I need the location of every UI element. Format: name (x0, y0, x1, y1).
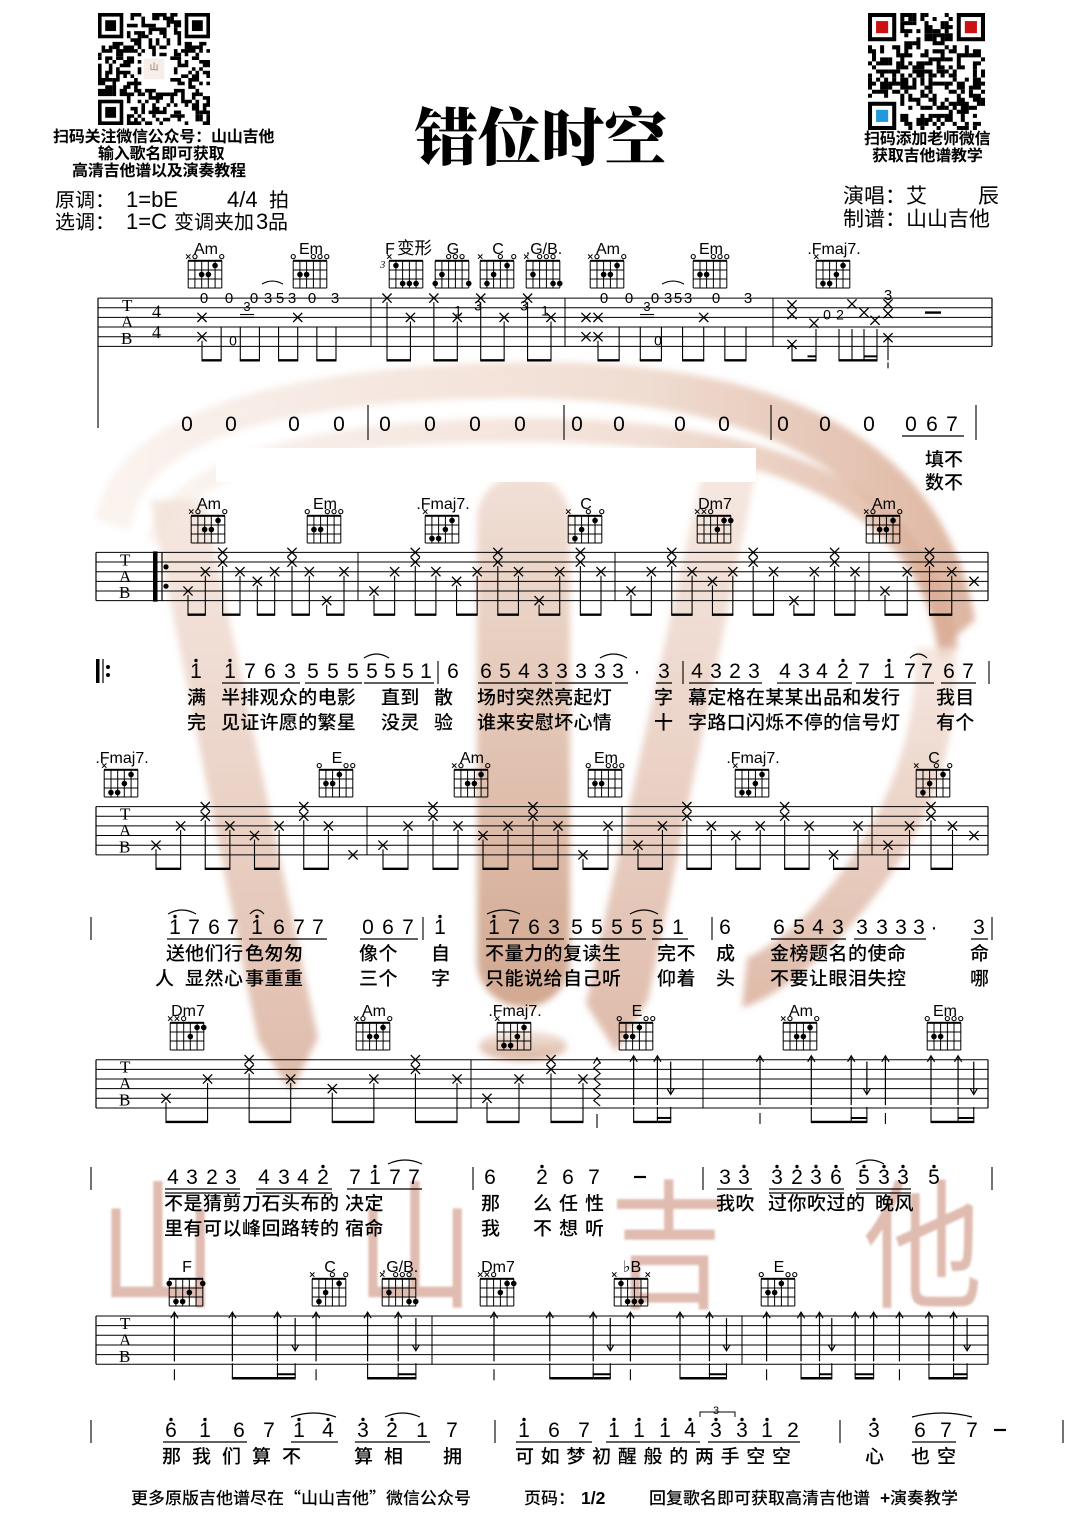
svg-text:6: 6 (719, 916, 731, 939)
svg-text:3: 3 (556, 660, 568, 683)
svg-text:6: 6 (264, 660, 276, 683)
svg-text:0: 0 (469, 413, 481, 436)
svg-text:2: 2 (536, 1166, 548, 1189)
svg-text:6: 6 (914, 1419, 926, 1442)
svg-text:0: 0 (712, 290, 720, 307)
svg-text:6: 6 (484, 1166, 496, 1189)
svg-text:3: 3 (612, 660, 624, 683)
svg-text:B: B (119, 1347, 130, 1366)
svg-text:3: 3 (474, 298, 482, 314)
svg-text:0: 0 (225, 413, 237, 436)
svg-text:Am: Am (872, 496, 896, 513)
svg-text:3: 3 (658, 660, 670, 683)
svg-text:0: 0 (863, 413, 875, 436)
svg-text:1/2: 1/2 (581, 1488, 606, 1508)
svg-text:6: 6 (480, 660, 492, 683)
svg-text:5: 5 (276, 290, 284, 307)
svg-text:2: 2 (791, 1166, 803, 1189)
svg-text:7: 7 (227, 916, 239, 939)
svg-text:0: 0 (651, 290, 659, 307)
svg-text:6: 6 (382, 916, 394, 939)
svg-text:1: 1 (454, 302, 462, 318)
svg-text:3: 3 (243, 299, 250, 314)
svg-text:B: B (121, 329, 132, 348)
svg-text:3: 3 (798, 660, 810, 683)
svg-text:7: 7 (578, 1419, 590, 1442)
svg-text:4: 4 (779, 660, 791, 683)
svg-text:6: 6 (208, 916, 220, 939)
svg-text:6: 6 (943, 660, 955, 683)
svg-text:0: 0 (308, 290, 316, 307)
svg-text:3: 3 (710, 660, 722, 683)
svg-text:4: 4 (167, 1166, 179, 1189)
svg-text:1: 1 (518, 1419, 530, 1442)
svg-text:1: 1 (420, 660, 432, 683)
svg-text:3: 3 (288, 290, 296, 307)
svg-text:0: 0 (600, 290, 608, 307)
svg-text:4: 4 (518, 660, 530, 683)
svg-text:7: 7 (904, 660, 916, 683)
svg-text:3: 3 (913, 916, 925, 939)
svg-text:·: · (634, 660, 641, 683)
svg-text:7: 7 (966, 1419, 978, 1442)
svg-text:Am: Am (194, 241, 218, 258)
svg-text:7: 7 (244, 660, 256, 683)
svg-text:5: 5 (652, 916, 664, 939)
svg-text:B: B (119, 1091, 130, 1110)
svg-text:7: 7 (312, 916, 324, 939)
svg-text:5: 5 (928, 1166, 940, 1189)
svg-text:3: 3 (748, 660, 760, 683)
svg-text:3: 3 (810, 1166, 822, 1189)
svg-text:♭B: ♭B (623, 1259, 641, 1276)
svg-text:3: 3 (575, 660, 587, 683)
svg-text:1: 1 (541, 302, 549, 318)
svg-text:6: 6 (528, 916, 540, 939)
svg-text:7: 7 (946, 413, 958, 436)
svg-text:5: 5 (631, 916, 643, 939)
svg-text:5: 5 (366, 660, 378, 683)
svg-text:·: · (931, 916, 938, 939)
svg-text:3: 3 (856, 916, 868, 939)
svg-text:3: 3 (643, 299, 650, 314)
svg-text:1: 1 (883, 660, 895, 683)
svg-text:2: 2 (787, 1419, 799, 1442)
svg-text:6: 6 (773, 916, 785, 939)
svg-text:4: 4 (152, 301, 161, 321)
svg-text:0: 0 (823, 306, 831, 322)
svg-text:5: 5 (402, 660, 414, 683)
svg-text:0: 0 (625, 290, 633, 307)
svg-text:Am: Am (197, 496, 221, 513)
svg-text:4: 4 (258, 1166, 270, 1189)
svg-text:3: 3 (736, 1419, 748, 1442)
svg-text:E: E (332, 750, 343, 767)
svg-text:0: 0 (229, 332, 237, 348)
svg-text:2: 2 (206, 1166, 218, 1189)
svg-text:7: 7 (940, 1419, 952, 1442)
svg-text:7: 7 (188, 916, 200, 939)
svg-text:3: 3 (278, 1166, 290, 1189)
svg-text:4: 4 (297, 1166, 309, 1189)
svg-text:3: 3 (594, 660, 606, 683)
svg-text:1: 1 (434, 916, 446, 939)
svg-text:+: + (880, 1488, 890, 1508)
svg-text:5: 5 (347, 660, 359, 683)
svg-text:4: 4 (684, 1419, 696, 1442)
svg-text:3: 3 (744, 290, 752, 307)
svg-text:3: 3 (225, 1166, 237, 1189)
svg-text:4: 4 (322, 1419, 334, 1442)
svg-text:Am: Am (460, 750, 484, 767)
svg-text:7: 7 (446, 1419, 458, 1442)
svg-text:3: 3 (357, 1419, 369, 1442)
svg-text:5: 5 (858, 1166, 870, 1189)
svg-text:3: 3 (264, 290, 272, 307)
svg-text:7: 7 (408, 1166, 420, 1189)
svg-text:0: 0 (225, 290, 233, 307)
svg-text:7: 7 (263, 1419, 275, 1442)
svg-text:7: 7 (402, 916, 414, 939)
svg-text:0: 0 (777, 413, 789, 436)
svg-text:3: 3 (186, 1166, 198, 1189)
svg-text:0: 0 (333, 413, 345, 436)
svg-text:1=C: 1=C (126, 209, 167, 234)
svg-text:3: 3 (520, 298, 528, 314)
svg-text:5: 5 (499, 660, 511, 683)
svg-text:0: 0 (674, 413, 686, 436)
svg-text:1: 1 (761, 1419, 773, 1442)
svg-text:1: 1 (293, 1419, 305, 1442)
svg-text:2: 2 (729, 660, 741, 683)
svg-text:1: 1 (608, 1419, 620, 1442)
svg-text:4: 4 (152, 322, 161, 342)
svg-text:7: 7 (858, 660, 870, 683)
svg-text:6: 6 (926, 413, 938, 436)
svg-text:B: B (119, 837, 130, 856)
svg-text:0: 0 (362, 916, 374, 939)
svg-text:1: 1 (169, 916, 181, 939)
svg-text:3: 3 (284, 660, 296, 683)
svg-text:0: 0 (654, 332, 662, 348)
svg-text:3: 3 (719, 1166, 731, 1189)
svg-text:7: 7 (921, 660, 933, 683)
svg-text:5: 5 (793, 916, 805, 939)
svg-text:0: 0 (571, 413, 583, 436)
svg-text:0: 0 (718, 413, 730, 436)
svg-text:1: 1 (190, 660, 202, 683)
svg-text:3: 3 (379, 260, 385, 271)
svg-text:0: 0 (200, 290, 208, 307)
svg-text:Am: Am (596, 241, 620, 258)
svg-text:5: 5 (611, 916, 623, 939)
svg-text:3: 3 (738, 1166, 750, 1189)
svg-text:E: E (632, 1003, 643, 1020)
svg-text:4: 4 (816, 660, 828, 683)
svg-text:1: 1 (488, 916, 500, 939)
svg-text:3: 3 (710, 1419, 722, 1442)
svg-text:6: 6 (447, 660, 459, 683)
svg-text:3: 3 (713, 1405, 719, 1417)
svg-text:7: 7 (389, 1166, 401, 1189)
svg-text:1: 1 (633, 1419, 645, 1442)
svg-text:4: 4 (691, 660, 703, 683)
svg-text:B: B (119, 583, 130, 602)
svg-text:F: F (182, 1259, 192, 1276)
svg-text:3: 3 (771, 1166, 783, 1189)
svg-text:3: 3 (973, 916, 985, 939)
svg-text:3: 3 (548, 916, 560, 939)
svg-text:1: 1 (659, 1419, 671, 1442)
svg-text:0: 0 (424, 413, 436, 436)
svg-text:6: 6 (830, 1166, 842, 1189)
svg-text:0: 0 (905, 413, 917, 436)
svg-text:3: 3 (876, 916, 888, 939)
svg-text:7: 7 (293, 916, 305, 939)
svg-text:3: 3 (537, 660, 549, 683)
svg-text:3: 3 (684, 290, 692, 307)
svg-text:1: 1 (416, 1419, 428, 1442)
svg-text:0: 0 (613, 413, 625, 436)
svg-text:Am: Am (789, 1003, 813, 1020)
svg-text:3: 3 (832, 916, 844, 939)
svg-text:5: 5 (591, 916, 603, 939)
svg-text:0: 0 (514, 413, 526, 436)
svg-text:0: 0 (819, 413, 831, 436)
svg-text:2: 2 (386, 1419, 398, 1442)
svg-text:5: 5 (571, 916, 583, 939)
svg-text:5: 5 (307, 660, 319, 683)
svg-text:4/4: 4/4 (227, 187, 258, 212)
svg-text:1: 1 (224, 660, 236, 683)
svg-text:7: 7 (349, 1166, 361, 1189)
svg-text:3: 3 (256, 209, 268, 234)
svg-text:2: 2 (837, 660, 849, 683)
svg-text:5: 5 (384, 660, 396, 683)
svg-text:6: 6 (233, 1419, 245, 1442)
svg-text:4: 4 (812, 916, 824, 939)
svg-text:6: 6 (273, 916, 285, 939)
svg-text:3: 3 (868, 1419, 880, 1442)
svg-text:0: 0 (379, 413, 391, 436)
svg-text:3: 3 (897, 1166, 909, 1189)
svg-text:3: 3 (878, 1166, 890, 1189)
svg-text:6: 6 (548, 1419, 560, 1442)
svg-text:0: 0 (288, 413, 300, 436)
svg-text:1: 1 (199, 1419, 211, 1442)
svg-text:Am: Am (362, 1003, 386, 1020)
svg-text:1: 1 (369, 1166, 381, 1189)
svg-text:2: 2 (317, 1166, 329, 1189)
svg-text:7: 7 (508, 916, 520, 939)
svg-text:E: E (774, 1259, 785, 1276)
svg-text:0: 0 (250, 290, 258, 307)
svg-text:5: 5 (674, 290, 682, 307)
svg-text:6: 6 (562, 1166, 574, 1189)
svg-text:7: 7 (588, 1166, 600, 1189)
svg-text:6: 6 (165, 1419, 177, 1442)
svg-text:2: 2 (836, 306, 844, 322)
svg-text:0: 0 (181, 413, 193, 436)
svg-text:3: 3 (895, 916, 907, 939)
svg-text:7: 7 (962, 660, 974, 683)
svg-text:3: 3 (331, 290, 339, 307)
svg-text:1: 1 (672, 916, 684, 939)
svg-text:5: 5 (327, 660, 339, 683)
svg-text:1: 1 (251, 916, 263, 939)
svg-text:3: 3 (664, 290, 672, 307)
